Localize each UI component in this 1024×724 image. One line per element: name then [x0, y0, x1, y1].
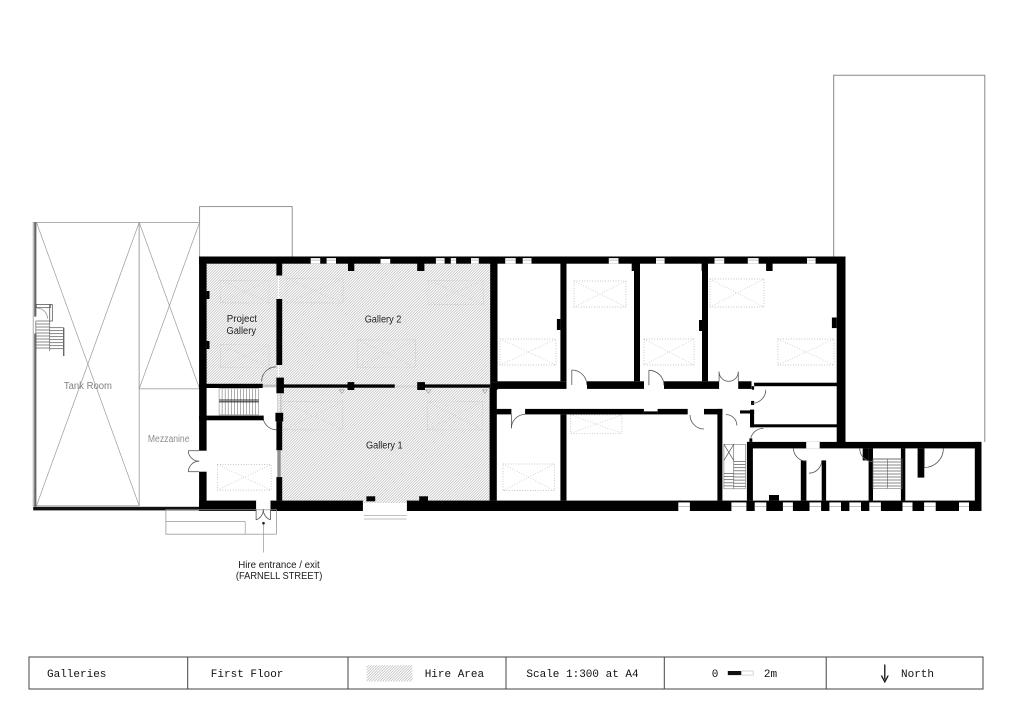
svg-text:Gallery 2: Gallery 2: [365, 315, 402, 326]
svg-text:Project: Project: [227, 314, 257, 325]
svg-text:Gallery: Gallery: [227, 326, 257, 337]
svg-text:Tank Room: Tank Room: [64, 381, 112, 392]
svg-text:(FARNELL STREET): (FARNELL STREET): [236, 571, 322, 582]
svg-text:Gallery 1: Gallery 1: [366, 440, 403, 451]
svg-text:North: North: [901, 669, 934, 681]
svg-text:Mezzanine: Mezzanine: [148, 434, 190, 445]
svg-text:0: 0: [712, 669, 719, 681]
svg-text:First Floor: First Floor: [211, 669, 284, 681]
svg-text:Scale 1:300 at A4: Scale 1:300 at A4: [526, 669, 639, 681]
svg-text:Hire entrance / exit: Hire entrance / exit: [238, 560, 320, 571]
svg-text:Galleries: Galleries: [47, 669, 106, 681]
svg-text:Hire Area: Hire Area: [425, 669, 485, 681]
svg-text:2m: 2m: [764, 669, 778, 681]
